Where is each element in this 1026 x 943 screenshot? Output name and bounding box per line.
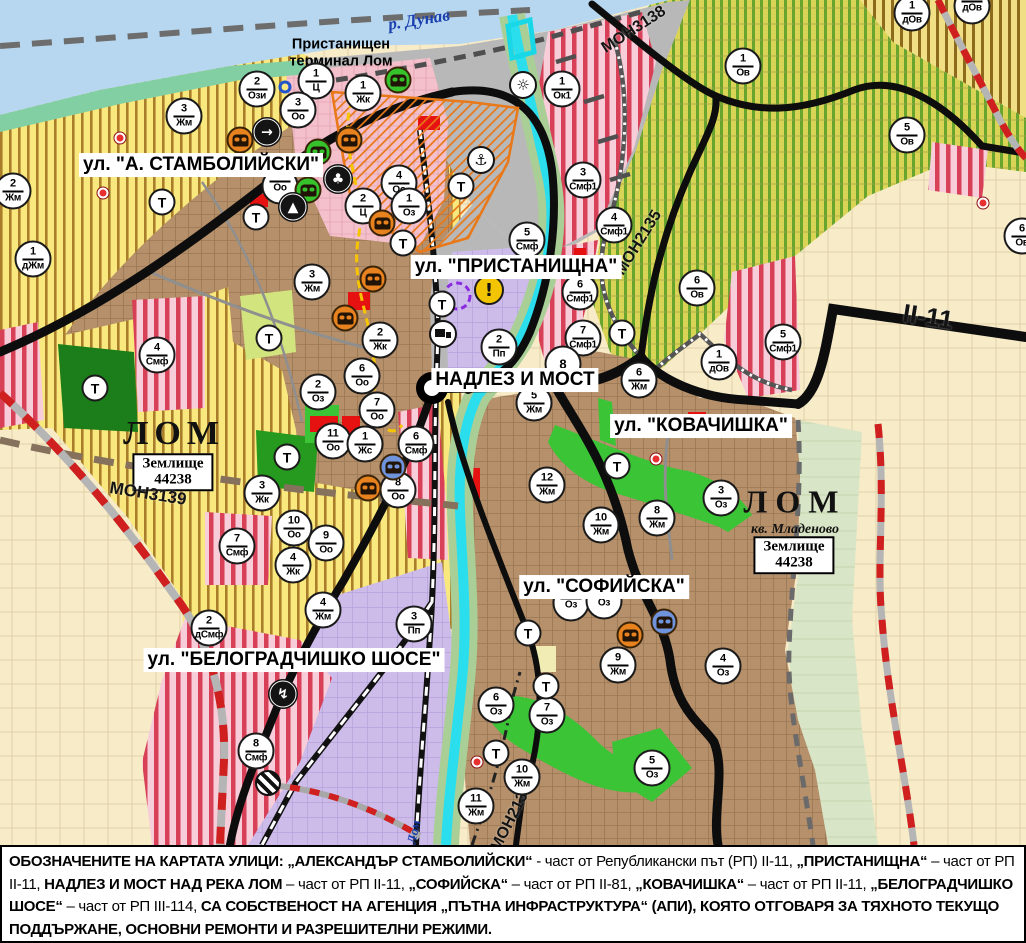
- legend-text-segment: – част от РП II-11,: [282, 876, 408, 893]
- zone-smf: [928, 142, 988, 198]
- zoning-map: р. ДунавЛомПристанищентерминал ЛомЛОМЛОМ…: [0, 0, 1026, 845]
- legend-text-segment: „АЛЕКСАНДЪР СТАМБОЛИЙСКИ“: [287, 853, 532, 870]
- legend-text-segment: „ПРИСТАНИЩНА“: [796, 853, 927, 870]
- legend-text-segment: НАДЛЕЗ И МОСТ НАД РЕКА ЛОМ: [44, 876, 282, 893]
- map-graphics: [0, 0, 1026, 845]
- zoning-map-document: р. ДунавЛомПристанищентерминал ЛомЛОМЛОМ…: [0, 0, 1026, 943]
- zone-smf: [205, 512, 272, 585]
- legend-text-segment: – част от РП III-114,: [63, 898, 201, 915]
- legend-text-segment: „КОВАЧИШКА“: [635, 876, 744, 893]
- legend-text-segment: „СОФИЙСКА“: [409, 876, 508, 893]
- legend-text-segment: ОБОЗНАЧЕНИТЕ НА КАРТАТА УЛИЦИ:: [9, 853, 287, 870]
- overpass-roundabout: [420, 376, 444, 400]
- legend-text-segment: – част от РП II-81,: [508, 876, 635, 893]
- legend-text-segment: – част от РП II-11,: [744, 876, 870, 893]
- legend-text-segment: - част от Републикански път (РП) II-11,: [532, 853, 796, 870]
- legend-note: ОБОЗНАЧЕНИТЕ НА КАРТАТА УЛИЦИ: „АЛЕКСАНД…: [0, 845, 1026, 943]
- zone-smf: [132, 296, 205, 412]
- zone-green: [58, 344, 138, 432]
